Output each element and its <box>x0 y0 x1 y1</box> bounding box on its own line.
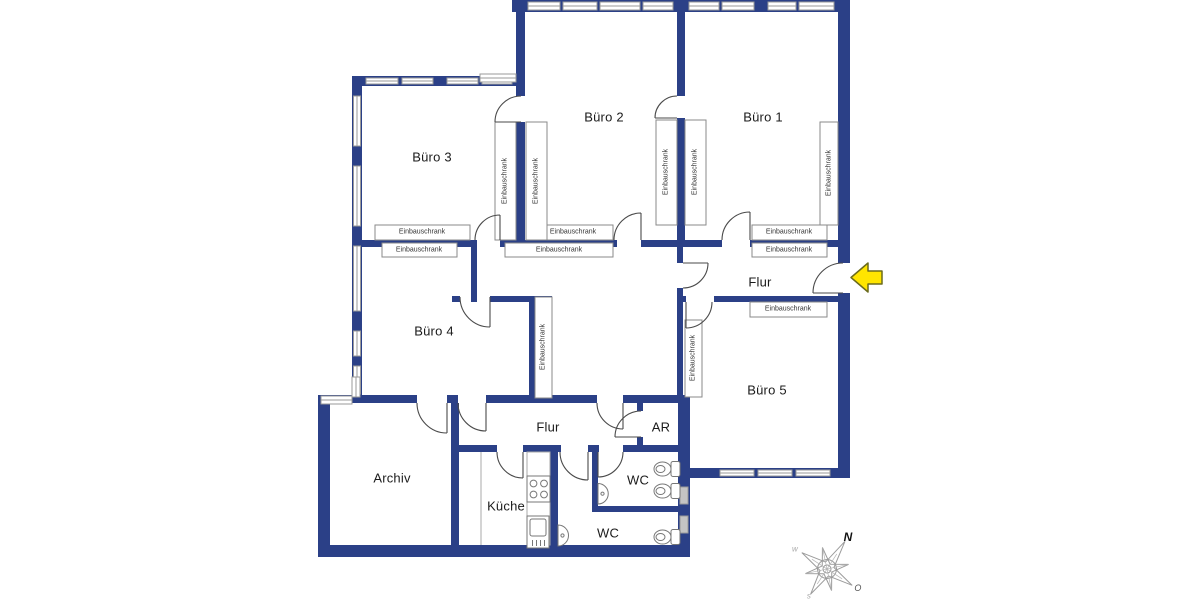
stove-icon <box>527 476 550 502</box>
floor-plan-drawing <box>0 0 1200 600</box>
room-label-buero-1: Büro 1 <box>743 110 783 125</box>
closet-label: Einbauschrank <box>533 158 540 204</box>
closet-label: Einbauschrank <box>396 247 442 254</box>
closet-label: Einbauschrank <box>540 324 547 370</box>
room-label-wc-lower: WC <box>597 526 619 541</box>
compass-west-label: w <box>792 545 798 554</box>
sink-icon <box>527 516 549 548</box>
toilet-icon <box>654 462 680 477</box>
room-label-buero-3: Büro 3 <box>412 150 452 165</box>
compass-east-label: O <box>854 583 861 593</box>
room-label-buero-5: Büro 5 <box>747 383 787 398</box>
closet-label: Einbauschrank <box>399 229 445 236</box>
room-label-buero-4: Büro 4 <box>414 324 454 339</box>
closet-label: Einbauschrank <box>690 335 697 381</box>
closet-label: Einbauschrank <box>550 229 596 236</box>
room-label-flur-main: Flur <box>748 275 771 290</box>
washbasin-icon <box>598 484 608 505</box>
room-label-wc-upper: WC <box>627 473 649 488</box>
closet-label: Einbauschrank <box>502 158 509 204</box>
compass-south-label: s <box>807 592 811 600</box>
room-label-ar: AR <box>652 420 670 435</box>
closet-label: Einbauschrank <box>766 229 812 236</box>
room-label-kueche: Küche <box>487 499 525 514</box>
room-label-buero-2: Büro 2 <box>584 110 624 125</box>
closet-label: Einbauschrank <box>766 247 812 254</box>
closet-label: Einbauschrank <box>536 247 582 254</box>
closet-label: Einbauschrank <box>663 149 670 195</box>
door-arcs <box>417 96 843 480</box>
floor-plan: Büro 3 Büro 2 Büro 1 Büro 4 Büro 5 Flur … <box>0 0 1200 600</box>
closet-label: Einbauschrank <box>826 150 833 196</box>
closet-label: Einbauschrank <box>692 149 699 195</box>
room-label-flur-lower: Flur <box>536 420 559 435</box>
toilet-icon <box>654 530 680 545</box>
room-label-archiv: Archiv <box>373 471 410 486</box>
closet-label: Einbauschrank <box>765 306 811 313</box>
entrance-arrow-icon <box>851 263 882 292</box>
washbasin-icon <box>558 525 569 546</box>
compass-north-label: N <box>844 530 853 544</box>
windows <box>321 2 834 533</box>
toilet-icon <box>654 484 680 499</box>
